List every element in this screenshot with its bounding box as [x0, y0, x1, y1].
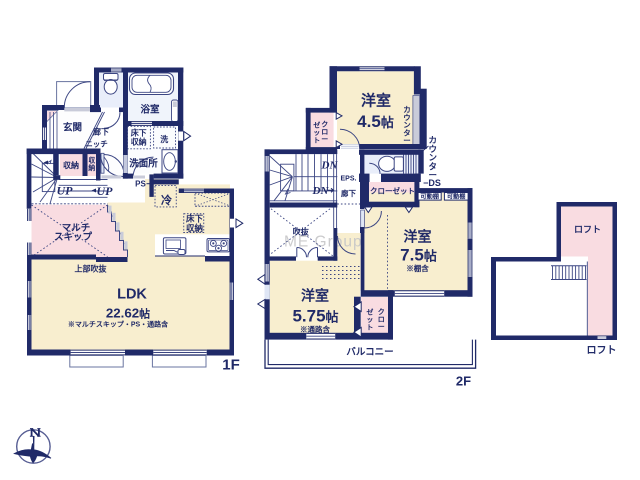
svg-text:LDK: LDK	[117, 287, 147, 303]
svg-text:ッ: ッ	[313, 130, 320, 137]
svg-text:収納: 収納	[131, 137, 147, 147]
svg-text:7.5帖: 7.5帖	[400, 246, 437, 265]
svg-text:収: 収	[88, 156, 95, 165]
svg-text:22.62帖: 22.62帖	[106, 306, 150, 321]
svg-text:廊下: 廊下	[341, 188, 356, 198]
svg-text:冷: 冷	[161, 193, 172, 207]
svg-text:DN: DN	[312, 185, 330, 197]
svg-text:納: 納	[88, 163, 95, 172]
svg-text:−DS: −DS	[423, 178, 441, 188]
svg-text:スキップ: スキップ	[54, 231, 93, 243]
svg-text:バルコニー: バルコニー	[346, 346, 393, 358]
svg-text:吹抜: 吹抜	[293, 227, 310, 237]
svg-text:収納: 収納	[186, 223, 203, 233]
svg-text:ロフト: ロフト	[587, 345, 617, 357]
svg-text:可動棚: 可動棚	[420, 193, 439, 201]
svg-text:ロ: ロ	[378, 316, 385, 324]
svg-text:1F: 1F	[222, 357, 240, 374]
svg-text:玄関: 玄関	[63, 122, 82, 134]
svg-text:ロ: ロ	[321, 128, 328, 136]
svg-text:洋室: 洋室	[361, 92, 391, 110]
svg-text:クローゼット: クローゼット	[370, 186, 415, 196]
svg-text:ー: ー	[378, 324, 385, 331]
svg-text:洗面所: 洗面所	[129, 158, 158, 170]
svg-text:※マルチスキップ・PS・通路含: ※マルチスキップ・PS・通路含	[68, 320, 169, 329]
svg-text:ゼ: ゼ	[313, 121, 320, 130]
svg-text:5.75帖: 5.75帖	[292, 307, 338, 326]
svg-text:床下: 床下	[131, 128, 147, 138]
svg-text:UP: UP	[57, 184, 74, 198]
svg-text:浴室: 浴室	[140, 104, 160, 116]
svg-text:可動棚: 可動棚	[447, 193, 466, 201]
svg-text:廊下: 廊下	[93, 127, 109, 137]
svg-text:洗: 洗	[160, 134, 168, 144]
svg-text:4.5帖: 4.5帖	[357, 112, 394, 131]
svg-text:PS: PS	[135, 180, 146, 189]
svg-text:※通路含: ※通路含	[300, 324, 330, 334]
svg-text:ッ: ッ	[366, 317, 373, 324]
svg-text:収納: 収納	[63, 160, 79, 170]
svg-text:2F: 2F	[456, 374, 471, 389]
svg-text:UP: UP	[97, 184, 114, 198]
svg-text:※棚含: ※棚含	[406, 263, 429, 273]
svg-text:ト: ト	[366, 324, 373, 332]
svg-text:EPS.: EPS.	[341, 176, 357, 183]
svg-text:ニッチ: ニッチ	[85, 140, 108, 149]
svg-text:床下: 床下	[186, 214, 204, 224]
svg-text:上部吹抜: 上部吹抜	[75, 264, 108, 274]
svg-text:洋室: 洋室	[404, 229, 432, 245]
svg-text:洋室: 洋室	[301, 288, 329, 304]
svg-text:ゼ: ゼ	[366, 308, 373, 317]
svg-text:ー: ー	[321, 137, 328, 144]
svg-text:DN: DN	[321, 160, 339, 172]
svg-text:ク: ク	[321, 120, 328, 129]
svg-text:ク: ク	[378, 307, 385, 316]
svg-text:ト: ト	[313, 137, 320, 145]
svg-text:ロフト: ロフト	[574, 225, 601, 235]
svg-text:ー: ー	[403, 136, 411, 145]
